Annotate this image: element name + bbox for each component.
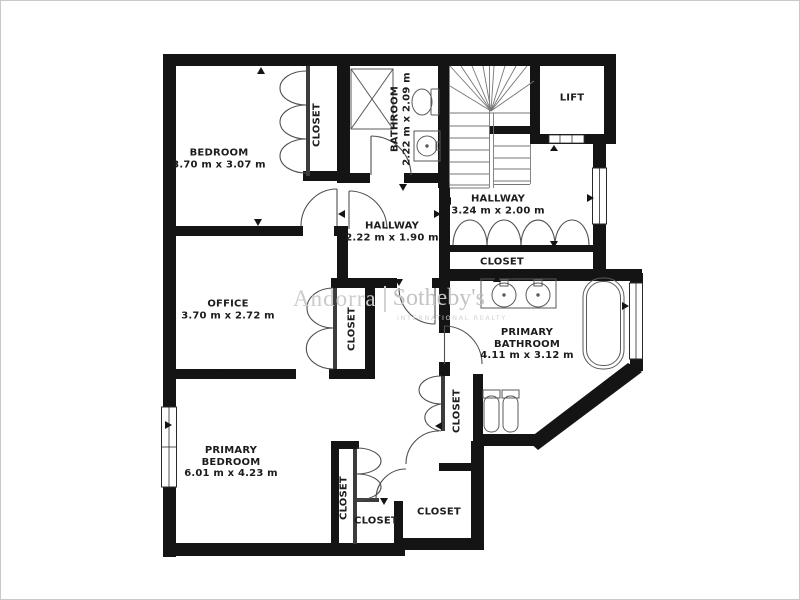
- wall-closetband-top: [449, 245, 593, 252]
- office-closet-door-arc: [307, 288, 333, 328]
- wall-bottom: [163, 543, 405, 556]
- room-name: HALLWAY: [451, 194, 545, 206]
- wall-bottom-right: [396, 538, 484, 550]
- closet-a-door-arc: [280, 71, 306, 105]
- wall-lift-right: [604, 54, 616, 144]
- room-name: BEDROOM: [184, 456, 278, 468]
- corridor-door-arc: [399, 288, 435, 324]
- closet-name: CLOSET: [480, 256, 524, 268]
- room-dims: 3.70 m x 2.72 m: [181, 310, 275, 322]
- room-dims: 4.11 m x 3.12 m: [480, 350, 574, 362]
- closet-name: CLOSET: [311, 103, 323, 147]
- room-label-hallway-upper: HALLWAY 3.24 m x 2.00 m: [451, 194, 545, 217]
- closet-label-southeast: CLOSET: [417, 506, 461, 518]
- partition-closet-e: [353, 449, 357, 544]
- closet-e-door-arc: [357, 474, 381, 500]
- marker-icon: [399, 184, 407, 191]
- room-dims: 3.70 m x 3.07 m: [172, 159, 266, 171]
- room-label-lift: LIFT: [560, 92, 585, 104]
- closet-name: CLOSET: [354, 515, 398, 527]
- primary-toilet: [483, 390, 500, 432]
- marker-icon: [338, 210, 345, 218]
- marker-icon: [435, 422, 442, 430]
- room-dims: 2.22 m x 1.90 m: [345, 232, 439, 244]
- double-vanity: [481, 279, 556, 308]
- wall-pbath-west: [439, 183, 450, 333]
- partition-office-closet: [333, 288, 337, 369]
- wall-office-bottom: [163, 369, 296, 379]
- wall-stairs-lift-divider: [530, 63, 540, 144]
- wall-bathroom-bottom-l: [348, 173, 370, 183]
- room-label-hallway-center: HALLWAY 2.22 m x 1.90 m: [345, 221, 439, 244]
- wall-bathroom-west: [337, 63, 350, 183]
- closet-label-bedroom: CLOSET: [311, 103, 323, 147]
- wall-bedroom-bottom: [163, 226, 303, 236]
- shower: [351, 69, 393, 129]
- wall-closet-e-top: [331, 441, 359, 449]
- marker-icon: [550, 145, 558, 151]
- bidet: [502, 390, 519, 432]
- room-name: BEDROOM: [172, 148, 266, 160]
- closet-a-door-arc: [280, 105, 306, 139]
- closet-name: CLOSET: [346, 307, 358, 351]
- marker-icon: [257, 67, 265, 74]
- lift-door: [549, 135, 584, 143]
- hallway-closet-door-arc: [487, 220, 521, 245]
- room-name: PRIMARY: [184, 445, 278, 457]
- room-label-bedroom: BEDROOM 3.70 m x 3.07 m: [172, 148, 266, 171]
- room-dims: 3.24 m x 2.00 m: [451, 205, 545, 217]
- hallway-closet-door-arc: [521, 220, 555, 245]
- room-name: HALLWAY: [345, 221, 439, 233]
- wall-stairs-stub: [489, 126, 530, 134]
- diagonal-door-arc: [406, 431, 439, 464]
- office-closet-door-arc: [306, 328, 333, 369]
- closet-label-south-left: CLOSET: [338, 476, 350, 520]
- room-name: BATHROOM: [390, 72, 402, 166]
- hallway-closet-door-arc: [453, 220, 487, 245]
- wall-closet-a-bottom: [303, 171, 350, 181]
- closet-b-door-arc: [419, 376, 441, 404]
- closet-label-south-small: CLOSET: [354, 515, 398, 527]
- wall-bathroom-east: [438, 63, 449, 188]
- closet-label-office: CLOSET: [346, 307, 358, 351]
- closet-e-door-arc: [357, 448, 381, 474]
- marker-icon: [380, 498, 388, 505]
- room-label-primary-bathroom: PRIMARY BATHROOM 4.11 m x 3.12 m: [480, 327, 574, 362]
- wall-pbath-west-corner: [439, 362, 450, 376]
- wall-closet-b-east: [473, 374, 483, 471]
- closet-name: CLOSET: [417, 506, 461, 518]
- room-label-office: OFFICE 3.70 m x 2.72 m: [181, 299, 275, 322]
- toilet: [412, 89, 439, 115]
- thin-partitions-group: [306, 66, 445, 544]
- room-label-bathroom: BATHROOM 2.22 m x 2.09 m: [390, 72, 413, 166]
- closet-label-hallway: CLOSET: [480, 256, 524, 268]
- closet-a-door-arc: [280, 139, 306, 173]
- room-name: BATHROOM: [480, 338, 574, 350]
- wall-top: [163, 54, 616, 66]
- closet-label-corridor: CLOSET: [451, 389, 463, 433]
- wall-officecloset-east: [365, 284, 375, 374]
- marker-icon: [622, 302, 629, 310]
- room-name: LIFT: [560, 92, 585, 104]
- floorplan-image: Andorra Sotheby's INTERNATIONAL REALTY B…: [0, 0, 800, 600]
- hallway-closet-door-arc: [555, 220, 589, 245]
- bedroom-door-arc: [301, 189, 337, 226]
- room-label-primary-bedroom: PRIMARY BEDROOM 6.01 m x 4.23 m: [184, 445, 278, 480]
- wall-hallwayc-bottom-l: [331, 278, 397, 288]
- room-name: OFFICE: [181, 299, 275, 311]
- room-dims: 6.01 m x 4.23 m: [184, 468, 278, 480]
- wall-diagonal: [527, 363, 642, 450]
- closet-name: CLOSET: [451, 389, 463, 433]
- bathtub: [583, 278, 624, 369]
- marker-icon: [254, 219, 262, 226]
- partition-closet-a: [306, 66, 310, 176]
- closet-name: CLOSET: [338, 476, 350, 520]
- room-name: PRIMARY: [480, 327, 574, 339]
- wall-closet-b-bottom: [439, 463, 483, 471]
- sink: [414, 131, 440, 161]
- room-dims: 2.22 m x 2.09 m: [401, 72, 413, 166]
